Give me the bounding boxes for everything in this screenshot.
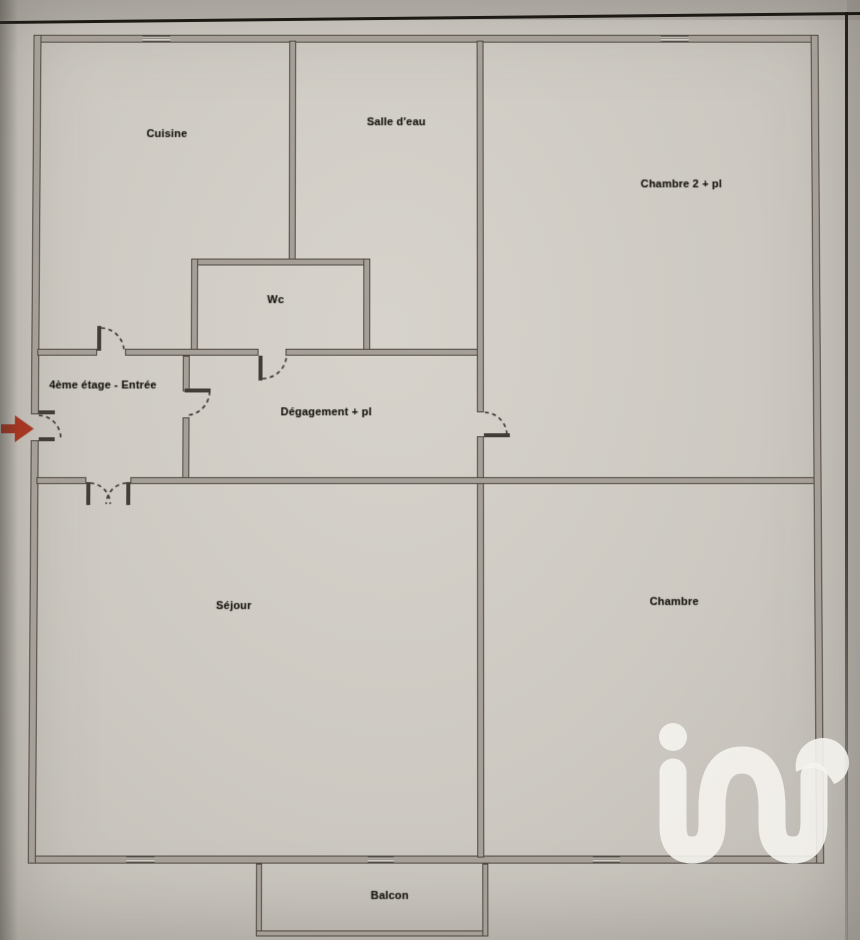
wall-balcony-left [256,864,262,937]
door-arc-degagement [187,391,210,415]
door-jog-chambre2 [484,433,510,437]
wall-entree-degagement-b [182,417,189,478]
door-arc-chambre2 [485,412,507,434]
iad-logo: iad [628,700,860,940]
window [126,857,154,863]
window [593,857,620,863]
room-label-degagement: Dégagement + pl [281,406,372,418]
wall-outer-left-upper [31,35,42,415]
wall-entree-degagement-a [183,356,190,392]
floor-plan-photo: Cuisine Salle d'eau Chambre 2 + pl Wc 4è… [0,0,860,940]
entrance-cap-bottom [39,437,55,441]
room-label-balcon: Balcon [371,890,409,902]
wall-corridor-top-c [285,349,477,356]
door-leaf-sejour-right [126,482,130,505]
wall-wc-right [363,259,370,355]
room-label-sejour: Séjour [216,600,252,612]
photo-shading-left [0,0,18,940]
door-leaf-sejour-left [86,482,90,505]
door-arc-cuisine [101,328,124,351]
room-label-chambre: Chambre [650,596,699,608]
door-jog-degagement [185,388,211,392]
room-label-salle-deau: Salle d'eau [367,116,426,128]
wall-cuisine-salledeau [289,41,296,266]
wall-balcony-bottom [256,930,489,936]
door-leaf-cuisine [97,326,101,351]
wall-wc-left [191,259,198,355]
room-label-wc: Wc [267,294,284,306]
wall-corridor-top-b [125,349,259,356]
door-arc-entrance [39,415,61,438]
window [661,36,689,42]
wall-outer-left-lower [28,440,39,863]
door-arc-wc [262,355,286,379]
room-label-chambre-2: Chambre 2 + pl [641,179,723,191]
wall-wc-top [191,259,370,266]
window-balcony-door [368,857,394,863]
wall-corridor-top-a [37,349,97,356]
room-label-cuisine: Cuisine [146,128,187,140]
wall-center-vertical-upper [477,41,484,413]
iad-logo-mark [628,700,860,940]
door-arc-sejour-left [90,483,110,504]
window [143,36,171,42]
room-label-entree: 4ème étage - Entrée [49,380,157,392]
wall-center-vertical-lower [477,436,484,857]
entrance-cap-top [39,410,55,414]
door-leaf-wc [258,356,262,381]
wall-corridor-bottom-a [36,477,86,484]
wall-corridor-bottom-b [130,477,814,484]
door-arc-sejour-right [106,483,126,504]
wall-balcony-right [482,864,488,937]
